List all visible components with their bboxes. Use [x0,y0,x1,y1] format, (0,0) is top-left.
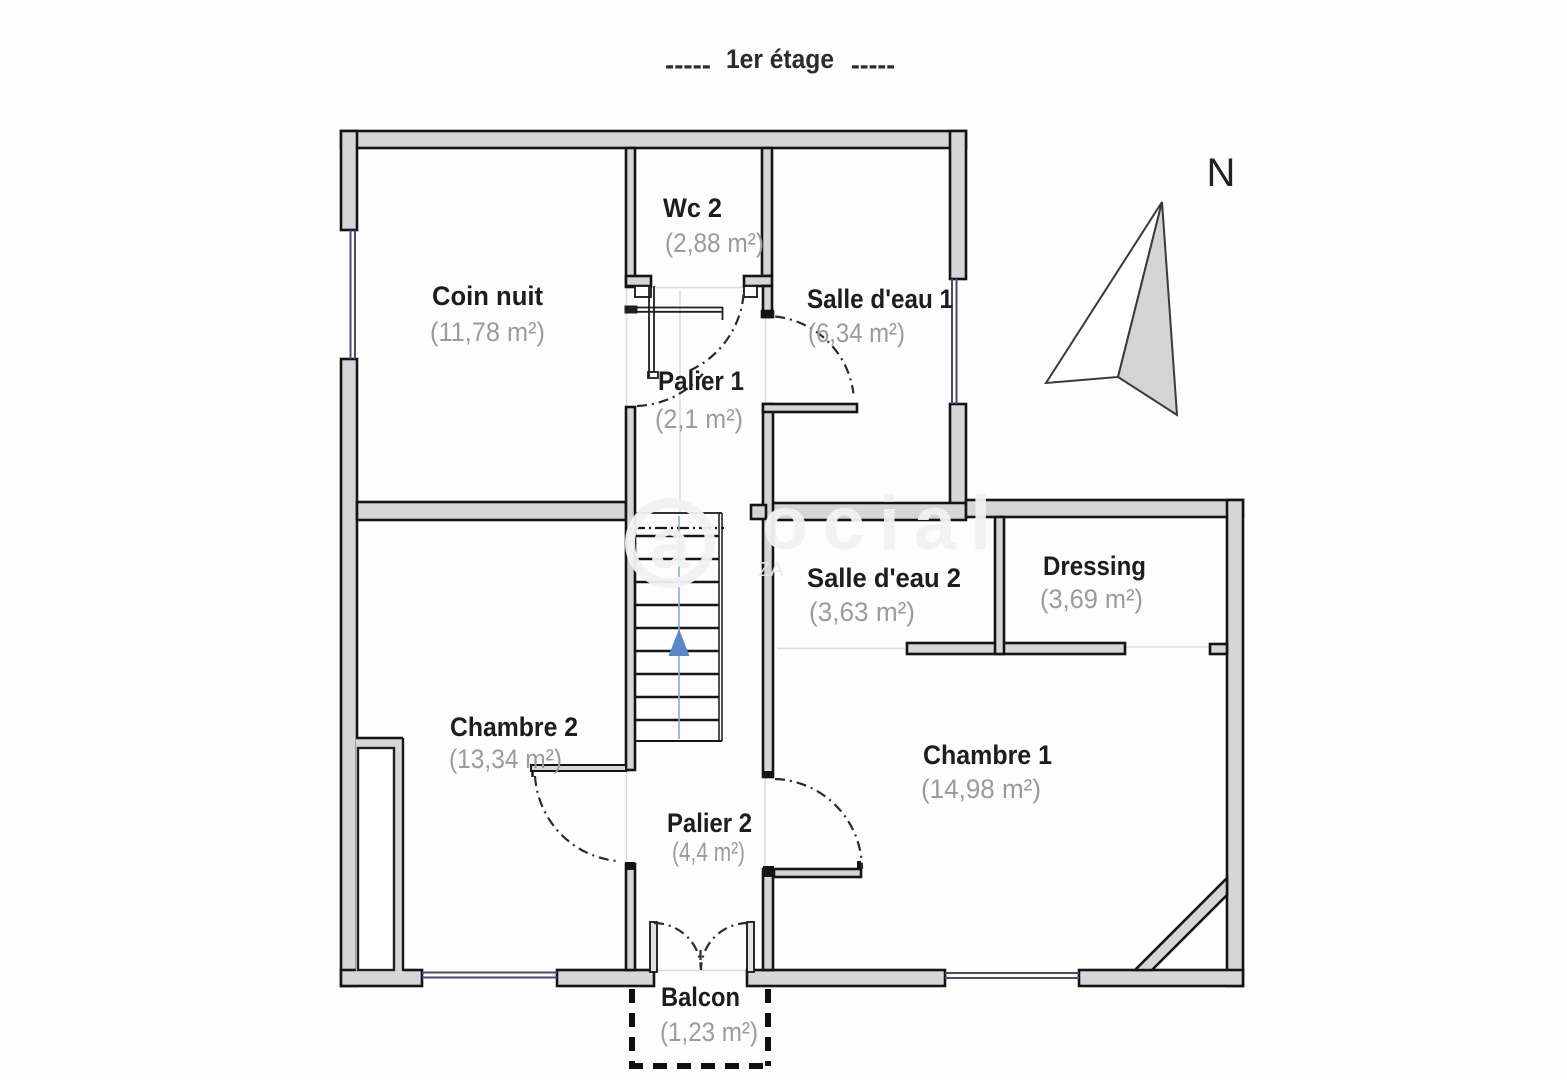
svg-text:Palier 2: Palier 2 [667,808,752,838]
svg-text:Balcon: Balcon [661,982,740,1012]
svg-text:Chambre 2: Chambre 2 [450,712,578,742]
svg-text:ocial: ocial [762,481,1005,566]
svg-text:Coin nuit: Coin nuit [432,281,543,311]
svg-text:(6,34 m²): (6,34 m²) [808,318,905,348]
svg-text:(13,34 m²): (13,34 m²) [449,744,562,774]
svg-text:Wc 2: Wc 2 [663,193,722,223]
svg-text:(3,63 m²): (3,63 m²) [809,597,915,627]
svg-text:Chambre 1: Chambre 1 [923,740,1052,770]
svg-text:(2,88 m²): (2,88 m²) [665,228,764,258]
svg-text:(2,1 m²): (2,1 m²) [655,404,743,434]
svg-text:1er étage: 1er étage [726,44,834,74]
svg-text:-----: ----- [851,50,895,80]
svg-text:(14,98 m²): (14,98 m²) [921,774,1041,804]
svg-text:Dressing: Dressing [1043,551,1146,581]
svg-text:ZA: ZA [758,559,784,581]
svg-text:Salle d'eau 1: Salle d'eau 1 [807,284,953,314]
svg-text:(4,4 m²): (4,4 m²) [672,837,745,867]
svg-text:N: N [1207,151,1236,195]
svg-text:(1,23 m²): (1,23 m²) [660,1017,758,1047]
svg-text:a: a [650,504,691,584]
svg-text:-----: ----- [665,50,711,80]
svg-text:(3,69 m²): (3,69 m²) [1040,584,1143,614]
svg-text:Palier 1: Palier 1 [658,366,744,396]
svg-text:Salle d'eau 2: Salle d'eau 2 [807,563,961,593]
svg-text:(11,78 m²): (11,78 m²) [430,317,545,347]
